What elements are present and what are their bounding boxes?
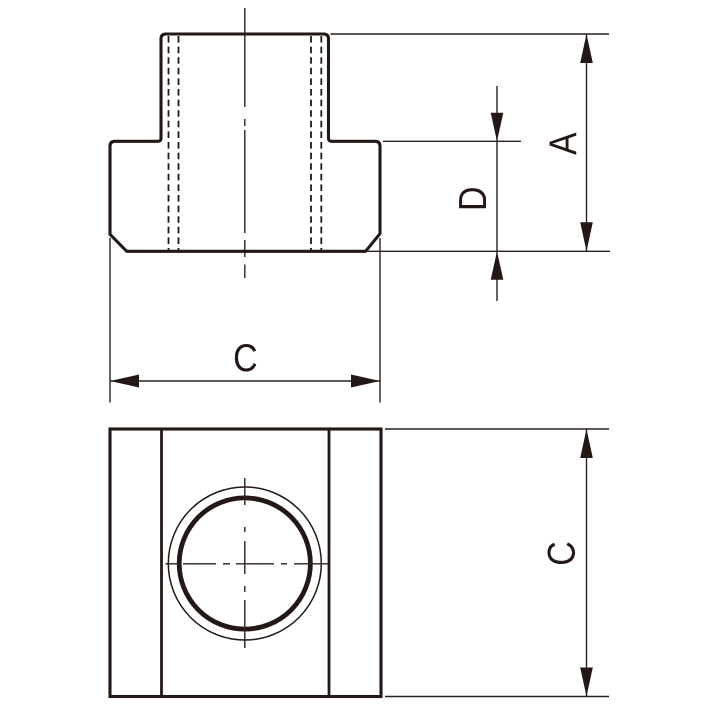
svg-text:D: D	[451, 186, 495, 211]
svg-text:C: C	[233, 336, 258, 380]
svg-text:A: A	[541, 132, 585, 155]
svg-text:C: C	[539, 541, 583, 566]
